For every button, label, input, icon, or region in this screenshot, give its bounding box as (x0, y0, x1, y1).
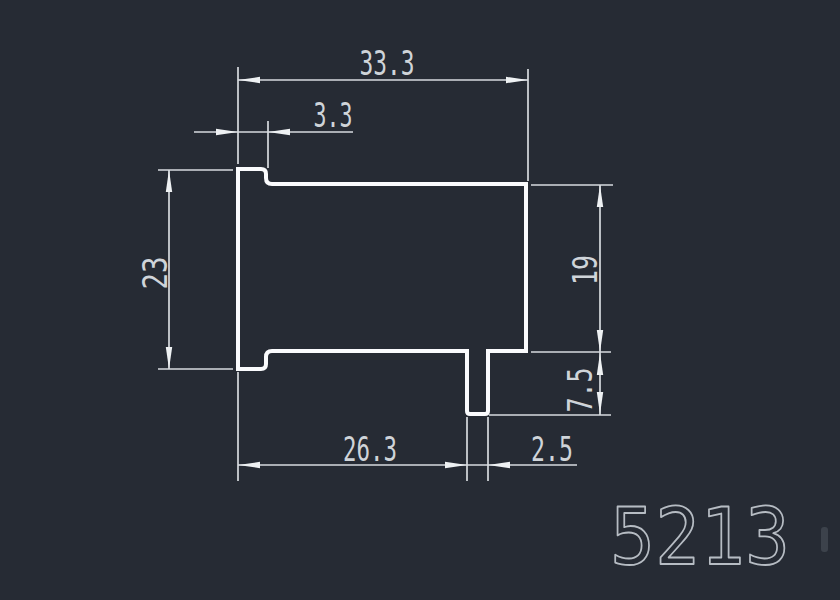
dim-text-flange-thickness: 3.3 (314, 96, 353, 135)
cad-canvas: 33.3 3.3 23 19 7.5 26.3 2.5 5213 (0, 0, 840, 600)
dim-text-overall-width: 33.3 (360, 44, 415, 83)
dim-text-leg-height: 7.5 (561, 368, 600, 413)
part-number-text: 5213 (610, 492, 790, 582)
dim-text-bottom-width: 26.3 (343, 430, 397, 469)
right-edge-artifact (821, 527, 828, 552)
dim-text-overall-height: 23 (136, 257, 175, 290)
profile-drawing: 33.3 3.3 23 19 7.5 26.3 2.5 5213 (0, 0, 840, 600)
dim-text-body-height: 19 (566, 255, 605, 285)
dim-text-leg-width: 2.5 (531, 430, 573, 469)
